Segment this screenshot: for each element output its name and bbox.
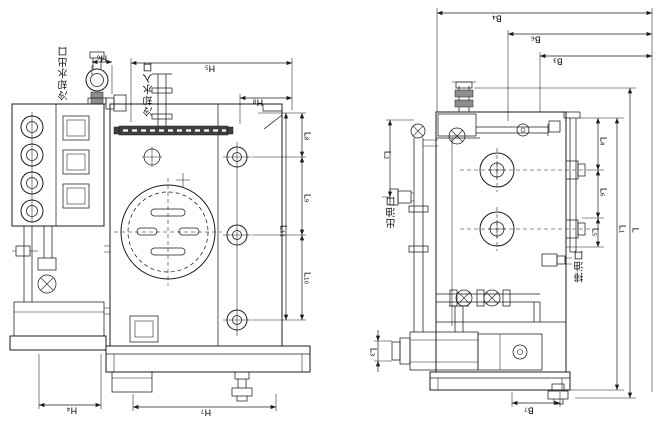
right-view-dimension-lines	[374, 8, 652, 407]
right-view-body	[390, 82, 590, 372]
right-view-base	[430, 372, 570, 404]
dim-label-l6: L₆	[598, 188, 607, 197]
left-view-body	[110, 104, 282, 346]
dim-label-l: L	[630, 227, 639, 232]
dim-label-l8: L₈	[302, 132, 311, 141]
cooling-water-inlet-pipe	[152, 74, 172, 126]
dim-label-l1: L₁	[617, 225, 626, 234]
dim-label-l10: L₁₀	[302, 272, 311, 284]
dim-label-b3: B₃	[553, 56, 563, 65]
oil-drain-label: 排油口	[576, 250, 586, 283]
dim-label-b4: B₄	[492, 13, 502, 22]
dim-label-l11: L₁₁	[278, 225, 287, 237]
dim-label-h8: H₈	[253, 97, 263, 106]
dim-label-l3: L₃	[368, 348, 377, 357]
oil-outlet-label: 出油口	[388, 196, 398, 229]
cooling-water-inlet-label: 冷却水入口	[145, 62, 155, 117]
dim-label-b7: B₇	[524, 405, 534, 414]
dim-label-h6: H₆	[97, 53, 107, 62]
engineering-drawing: 冷却水出口 冷却水入口 H₆ H₅ H₈ L₈ L₉ L₁₁ L₁₀ H₄ H₇…	[0, 0, 660, 422]
dim-label-l5: L₅	[590, 228, 599, 237]
dim-label-l9: L₉	[302, 194, 311, 203]
left-side-unit	[10, 104, 110, 350]
cooling-water-outlet-label: 冷却水出口	[60, 46, 70, 101]
dim-label-l4: L₄	[598, 137, 607, 146]
dim-label-l2: L₂	[382, 151, 391, 160]
dim-label-h4: H₄	[67, 405, 77, 414]
left-view-base	[106, 346, 310, 401]
dim-label-h7: H₇	[201, 407, 211, 416]
dim-label-b6: B₆	[531, 34, 541, 43]
dim-label-h5: H₅	[205, 63, 215, 72]
